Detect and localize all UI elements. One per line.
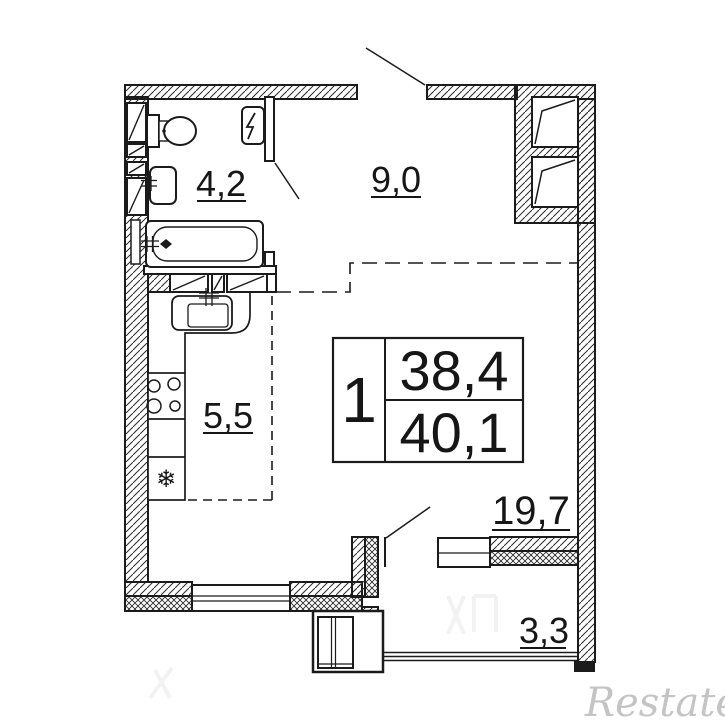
balcony-door-bay <box>313 611 383 672</box>
wall-bottom-2-insulation <box>290 596 362 611</box>
wall-balcony-left-v-insulation <box>365 537 378 597</box>
living-room-window <box>192 585 290 611</box>
area-value-bottom: 40,1 <box>400 401 509 464</box>
bathroom-door-swing <box>275 163 299 199</box>
wall-bottom-1 <box>125 582 192 596</box>
entrance-door-swing <box>366 48 425 85</box>
kitchen-sink <box>172 288 232 330</box>
wall-bottom-1-insulation <box>125 596 192 611</box>
floor-plan: ❄ 4,2 9,0 5,5 19,7 3,3 1 38,4 40,1 Resta… <box>0 0 725 725</box>
wall-patch-under-bathroom <box>148 274 170 292</box>
area-value-top: 38,4 <box>400 339 509 402</box>
toilet <box>147 115 196 147</box>
wall-top-right <box>427 85 517 99</box>
rooms-count: 1 <box>341 364 377 436</box>
floor-plan-drawing: ❄ 4,2 9,0 5,5 19,7 3,3 1 38,4 40,1 Resta… <box>0 0 725 725</box>
bathroom-area-label: 4,2 <box>196 163 246 204</box>
door-swings <box>275 48 430 567</box>
toilet-valve <box>162 129 166 133</box>
balcony-railing <box>383 653 578 661</box>
bathtub <box>141 221 263 267</box>
hallway-area-label: 9,0 <box>371 159 421 200</box>
wall-top-left <box>125 85 357 99</box>
wall-balcony-top-insulation <box>490 551 578 565</box>
toilet-bowl <box>164 117 196 145</box>
wall-balcony-top <box>490 537 578 551</box>
electrical-panel-icon <box>242 107 264 144</box>
wall-balcony-left-v <box>352 537 365 597</box>
balcony-area-label: 3,3 <box>519 610 569 651</box>
hallway-zone-dashed <box>276 263 578 292</box>
toilet-tank <box>147 115 159 147</box>
wall-right-bottom-cap <box>574 661 595 672</box>
balcony-door-swing <box>386 507 430 538</box>
bathroom-partition <box>265 97 274 161</box>
restate-watermark: Restate <box>584 680 725 725</box>
wall-right <box>578 99 595 662</box>
fridge-icon: ❄ <box>156 465 176 493</box>
info-box: 1 38,4 40,1 <box>333 338 523 464</box>
living-room-area-label: 19,7 <box>492 489 570 533</box>
left-wall-duct <box>131 220 140 264</box>
kitchen-area-label: 5,5 <box>203 395 253 436</box>
duct-stub <box>267 274 276 292</box>
